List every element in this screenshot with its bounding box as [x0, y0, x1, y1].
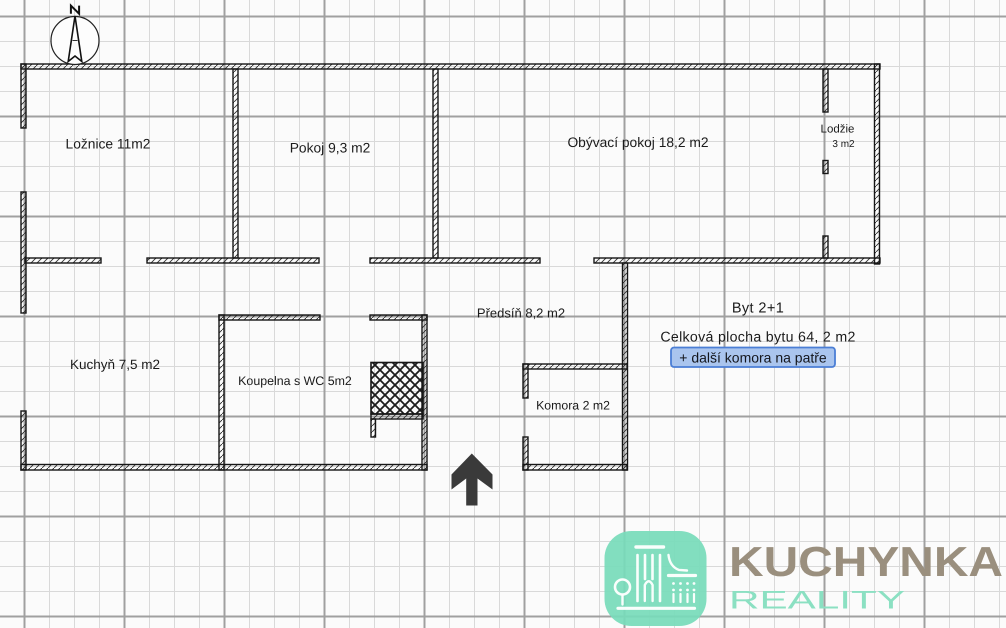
svg-text:Byt 2+1: Byt 2+1 [732, 301, 784, 317]
svg-text:Pokoj 9,3 m2: Pokoj 9,3 m2 [290, 141, 371, 156]
svg-text:Koupelna s WC 5m2: Koupelna s WC 5m2 [238, 374, 352, 388]
svg-text:3 m2: 3 m2 [832, 139, 855, 150]
svg-text:Obývací pokoj 18,2 m2: Obývací pokoj 18,2 m2 [567, 135, 708, 150]
svg-text:Předsíň 8,2 m2: Předsíň 8,2 m2 [477, 306, 565, 321]
svg-text:Lodžie: Lodžie [821, 124, 855, 136]
svg-text:Celková plocha bytu 64, 2 m2: Celková plocha bytu 64, 2 m2 [660, 330, 855, 346]
svg-text:Ložnice 11m2: Ložnice 11m2 [66, 137, 151, 152]
svg-text:+ další komora na patře: + další komora na patře [679, 350, 827, 366]
svg-text:Kuchyň 7,5 m2: Kuchyň 7,5 m2 [70, 357, 160, 372]
svg-text:KUCHYNKA: KUCHYNKA [729, 538, 1003, 585]
svg-text:Komora 2 m2: Komora 2 m2 [536, 399, 610, 413]
svg-text:REALITY: REALITY [729, 587, 905, 615]
